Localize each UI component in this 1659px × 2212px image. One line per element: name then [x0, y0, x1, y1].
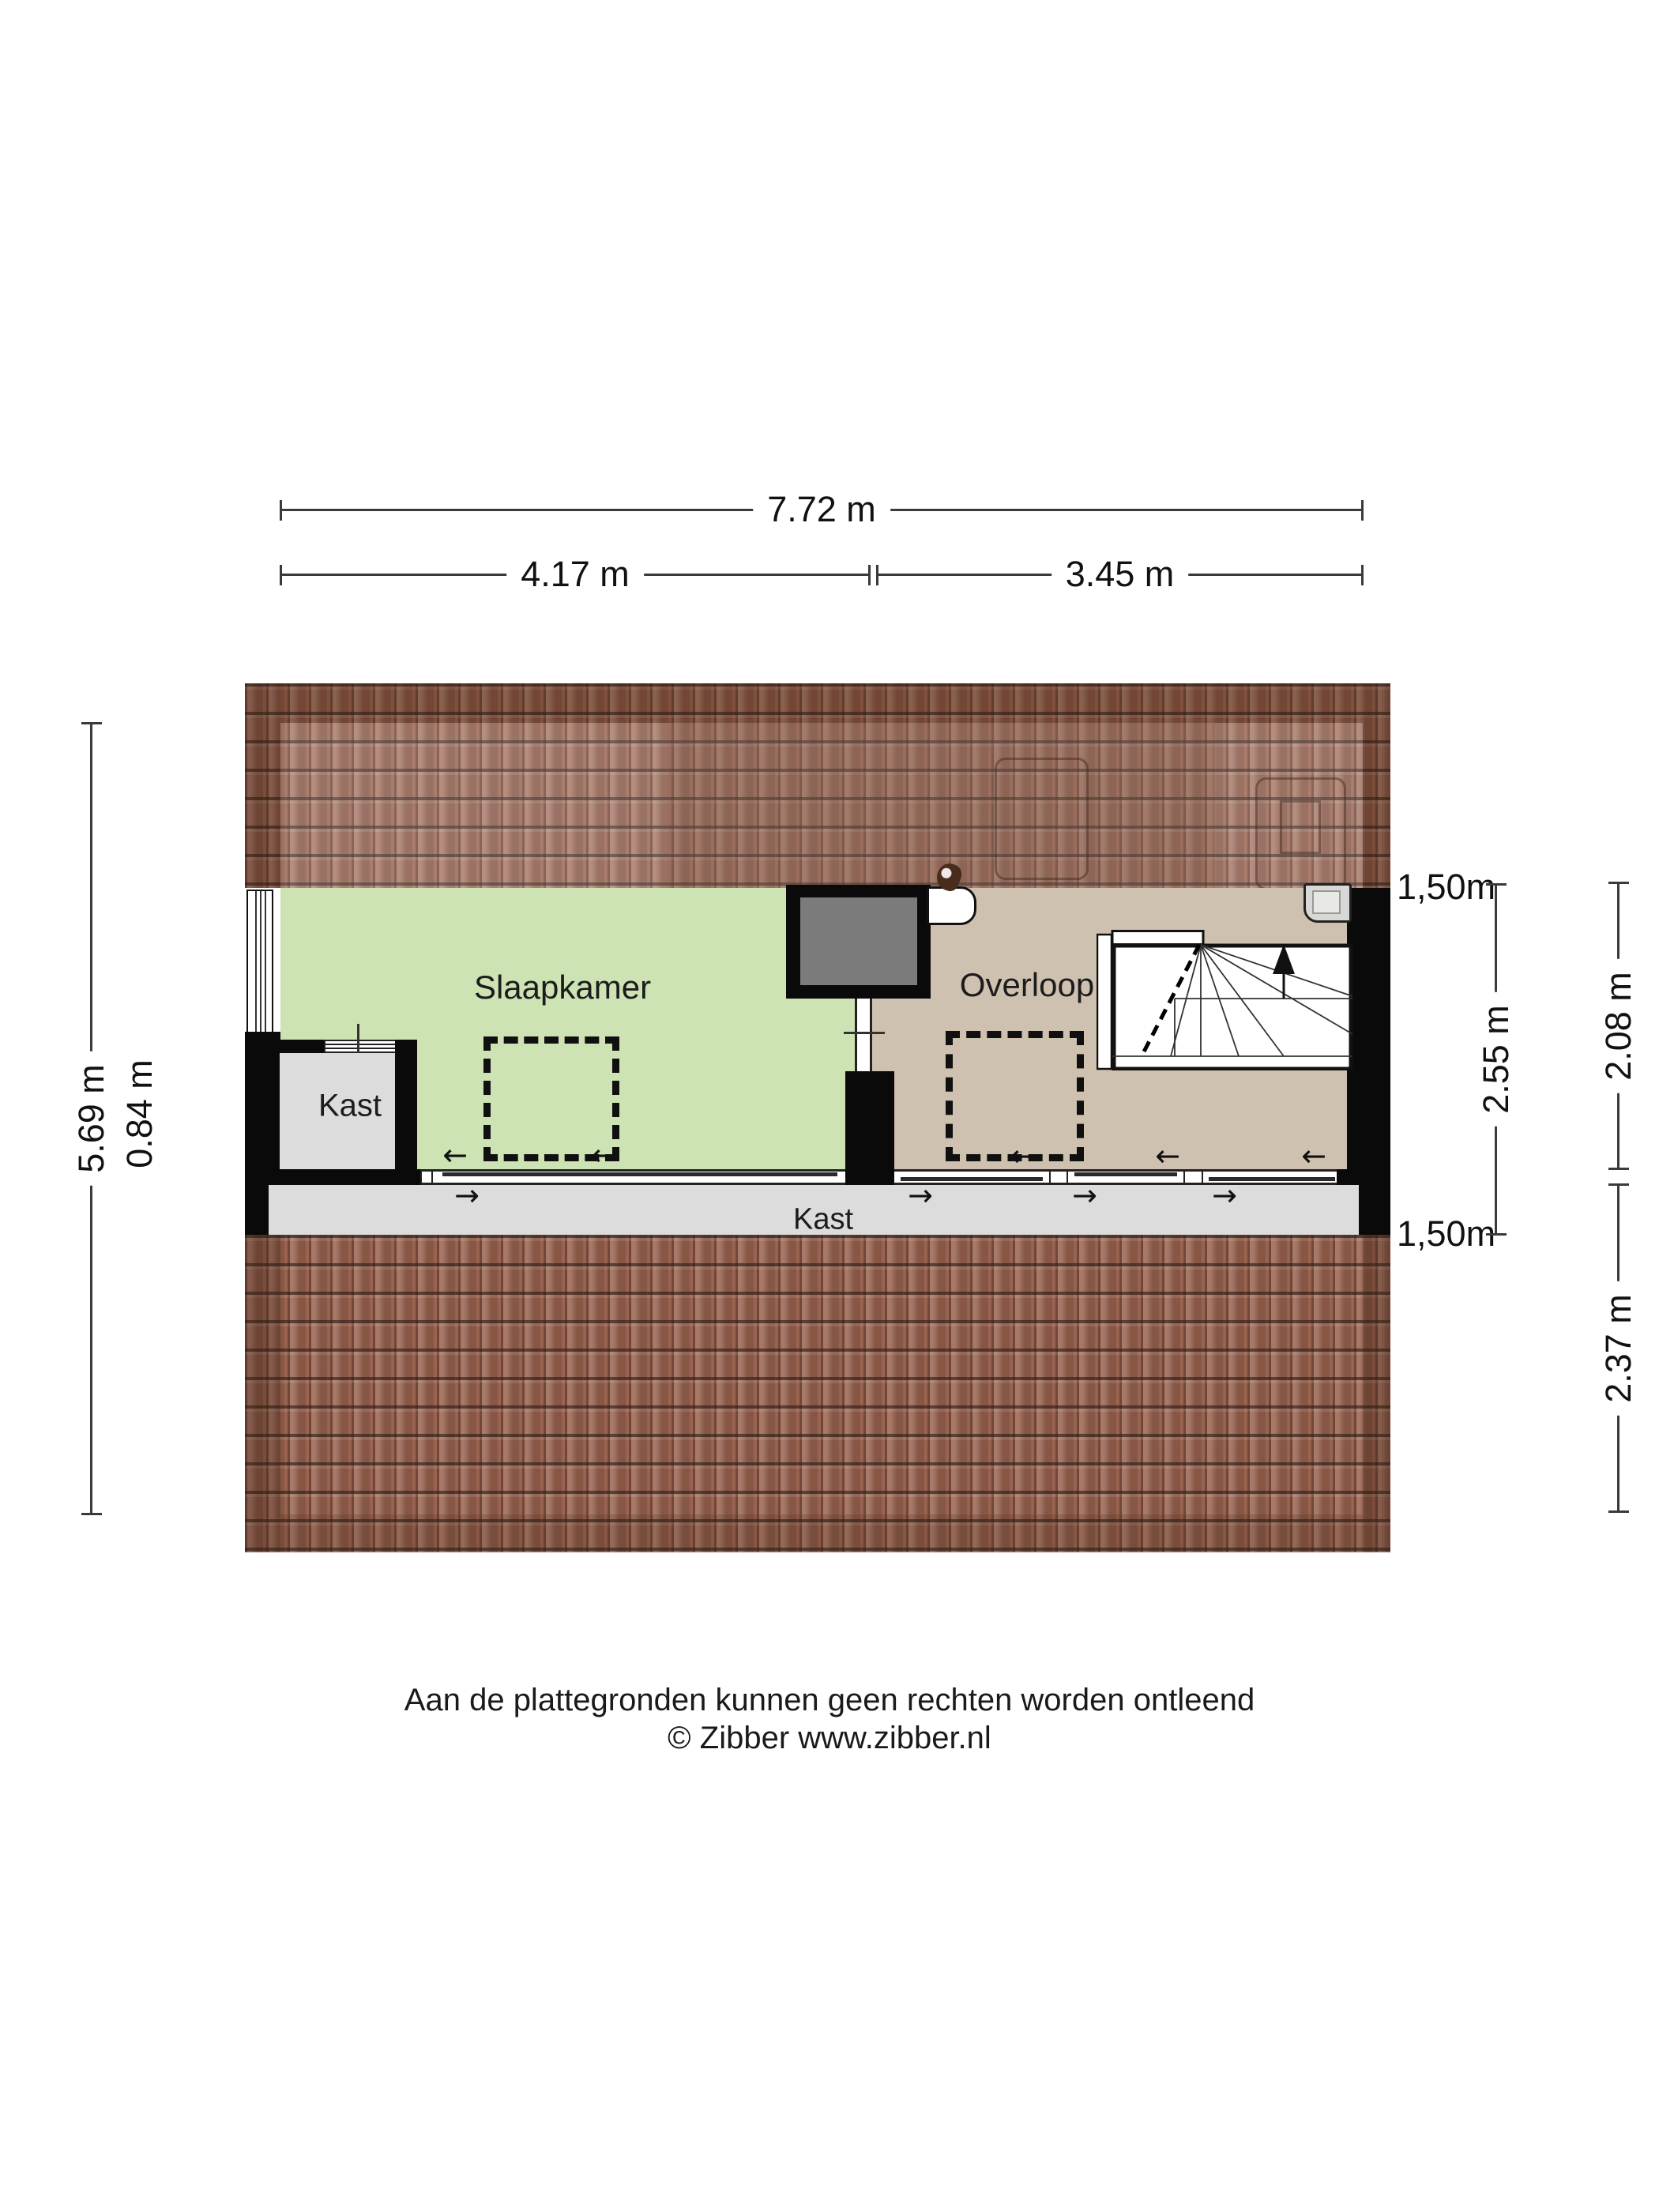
dim-tick: [280, 565, 282, 585]
gable-window: [246, 890, 273, 1035]
dimension-overloop-depth-label: 2.08 m: [1598, 959, 1639, 1093]
dimension-total-width: 7.72 m: [280, 509, 1363, 511]
dim-tick: [1486, 883, 1507, 886]
height-line-label-top: 1,50m: [1397, 867, 1495, 908]
corner-skylight-pane: [1312, 890, 1341, 914]
kast-wall-bottom: [245, 1169, 420, 1185]
door-slaapkamer-overloop: [855, 999, 872, 1071]
dim-tick: [1361, 500, 1364, 521]
slope-arrow-right: →: [1072, 1180, 1097, 1210]
slope-arrow-left: ←: [1301, 1141, 1326, 1171]
dimension-room-depth-label: 2.55 m: [1476, 992, 1517, 1127]
dim-tick: [1486, 1233, 1507, 1236]
slope-arrow-left: ←: [442, 1140, 468, 1170]
height-line-label-bottom: 1,50m: [1397, 1213, 1495, 1255]
dim-tick: [1361, 565, 1364, 585]
dim-tick: [1608, 882, 1629, 884]
floorplan-page: { "title": "Zibber plattegrond - verdiep…: [0, 0, 1659, 2212]
chimney-shaft: [800, 897, 917, 985]
dim-tick: [868, 565, 871, 585]
door-threshold-line: [844, 1032, 885, 1034]
dimension-storage-depth: 2.37 m: [1617, 1184, 1619, 1512]
dimension-kast-depth: 0.84 m: [138, 1056, 141, 1172]
dim-tick: [81, 722, 102, 724]
slope-arrow-right: →: [454, 1180, 480, 1210]
wall-between-rooms: [845, 1071, 894, 1169]
slope-arrow-right: →: [908, 1180, 933, 1210]
roof-window-glyph-icon: [1280, 800, 1321, 854]
slope-arrow-left: ←: [1010, 1141, 1035, 1171]
dimension-room-depth: 2.55 m: [1495, 884, 1497, 1235]
slope-arrow-left: ←: [591, 1140, 616, 1170]
dim-tick: [1608, 1168, 1629, 1170]
roof-window-outline-icon: [1255, 777, 1346, 890]
dimension-kast-depth-label: 0.84 m: [119, 1047, 160, 1181]
knee-wall-post: [1049, 1172, 1068, 1183]
dimension-width-left-label: 4.17 m: [506, 554, 644, 595]
corner-skylight: [1303, 883, 1352, 923]
dim-tick: [876, 565, 878, 585]
overloop-label: Overloop: [960, 966, 1094, 1004]
dim-tick: [81, 1513, 102, 1515]
floorplan: Slaapkamer Overloop Kast: [245, 683, 1390, 1552]
storage-door-panel: [442, 1172, 837, 1176]
dimension-width-left: 4.17 m: [280, 574, 870, 576]
dimension-width-right-label: 3.45 m: [1051, 554, 1189, 595]
slaapkamer-label: Slaapkamer: [474, 969, 651, 1006]
kast-door: [324, 1040, 398, 1053]
knee-wall-post: [1183, 1172, 1203, 1183]
roof-slope-bottom: [245, 1235, 1390, 1552]
dim-tick: [1608, 1183, 1629, 1186]
knee-wall-post: [420, 1172, 433, 1183]
kast-storage-label: Kast: [793, 1203, 853, 1237]
knee-wall: [420, 1169, 1347, 1185]
knee-wall-black-segment: [1337, 1169, 1347, 1185]
ventilation-unit: [927, 886, 976, 925]
knee-wall-black-segment: [845, 1169, 894, 1185]
dimension-total-depth: 5.69 m: [90, 723, 92, 1514]
kast-wall-top-left: [280, 1040, 324, 1053]
dimension-total-depth-label: 5.69 m: [71, 1051, 112, 1186]
roof-slope-top: [245, 683, 1390, 888]
dim-tick: [280, 500, 282, 521]
disclaimer-line: Aan de plattegronden kunnen geen rechten…: [0, 1681, 1659, 1719]
dimension-width-right: 3.45 m: [877, 574, 1363, 576]
dim-tick: [1608, 1510, 1629, 1513]
kast-closet-label: Kast: [318, 1089, 382, 1124]
storage-door-panel: [1074, 1172, 1177, 1176]
roof-window-outline-icon: [995, 758, 1089, 880]
copyright-line: © Zibber www.zibber.nl: [0, 1719, 1659, 1757]
slope-arrow-right: →: [1212, 1180, 1237, 1210]
dimension-total-width-label: 7.72 m: [753, 489, 890, 530]
disclaimer: Aan de plattegronden kunnen geen rechten…: [0, 1681, 1659, 1757]
kast-wall-right: [395, 1040, 417, 1185]
slope-arrow-left: ←: [1155, 1141, 1180, 1171]
dimension-storage-depth-label: 2.37 m: [1598, 1281, 1639, 1416]
staircase: [1097, 930, 1360, 1070]
dimension-overloop-depth: 2.08 m: [1617, 882, 1619, 1169]
